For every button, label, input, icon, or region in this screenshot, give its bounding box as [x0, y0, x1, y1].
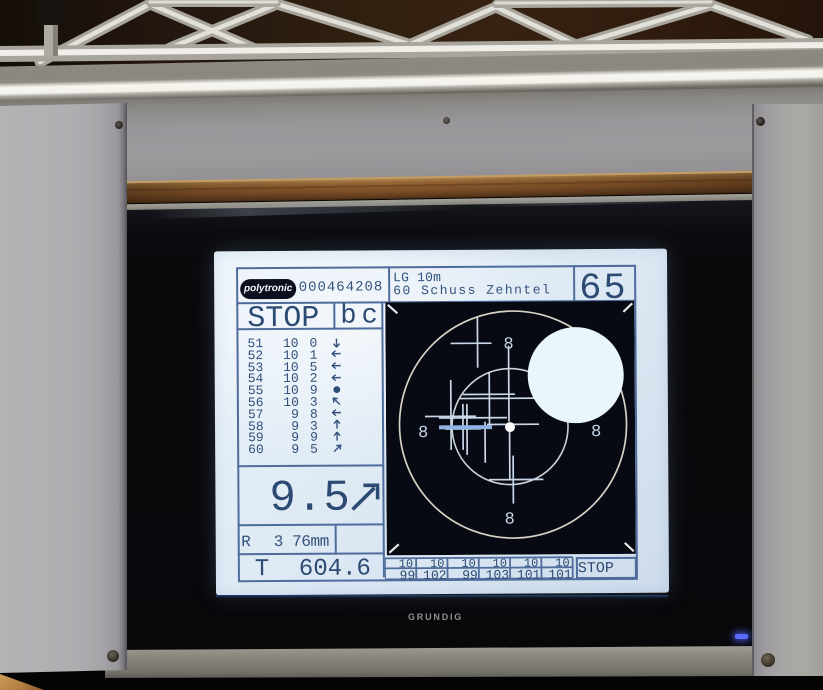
- svg-text:8: 8: [591, 423, 601, 442]
- svg-text:8: 8: [503, 336, 513, 355]
- svg-text:8: 8: [505, 511, 515, 530]
- svg-text:8: 8: [418, 424, 428, 443]
